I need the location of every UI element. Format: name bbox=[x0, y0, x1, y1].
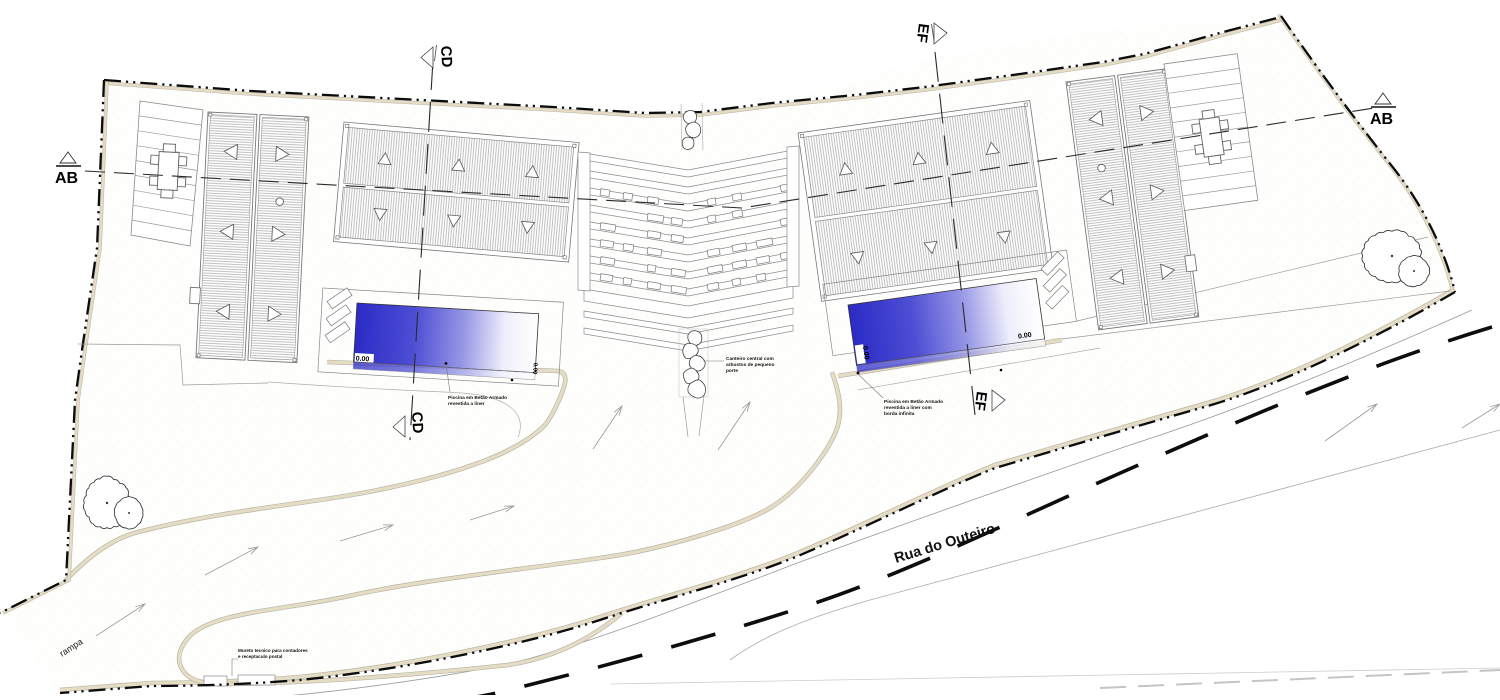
svg-text:0.00: 0.00 bbox=[531, 362, 538, 375]
svg-text:revestida a liner: revestida a liner bbox=[448, 401, 485, 407]
svg-text:Canteiro central com: Canteiro central com bbox=[726, 356, 774, 362]
svg-text:EF: EF bbox=[913, 23, 932, 44]
svg-text:porte: porte bbox=[726, 368, 738, 374]
svg-text:0.00: 0.00 bbox=[355, 356, 369, 364]
svg-text:CD: CD bbox=[437, 45, 455, 68]
svg-text:Piscina em Betão Armado: Piscina em Betão Armado bbox=[448, 395, 507, 401]
svg-text:AB: AB bbox=[1370, 111, 1393, 128]
svg-text:revestida a liner com: revestida a liner com bbox=[884, 405, 932, 411]
svg-text:borda infinita: borda infinita bbox=[884, 411, 915, 417]
svg-text:Piscina em Betão Armado: Piscina em Betão Armado bbox=[884, 399, 943, 405]
svg-text:Rua do Outeiro: Rua do Outeiro bbox=[892, 521, 997, 567]
svg-text:CD: CD bbox=[408, 411, 426, 434]
svg-text:arbustos de pequeno: arbustos de pequeno bbox=[726, 362, 775, 368]
svg-text:e receptaculo postal: e receptaculo postal bbox=[238, 654, 282, 659]
svg-text:Mureto tecnico para contadores: Mureto tecnico para contadores bbox=[238, 648, 308, 653]
svg-text:AB: AB bbox=[55, 170, 78, 187]
svg-text:EF: EF bbox=[971, 391, 990, 412]
